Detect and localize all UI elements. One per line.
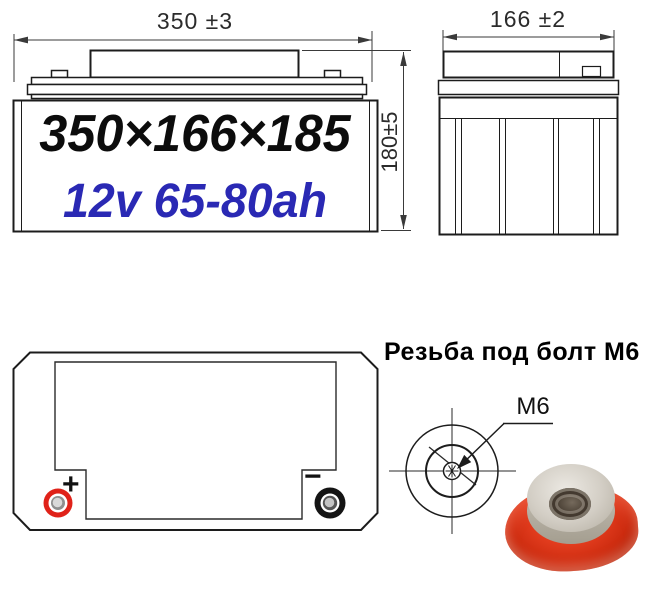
battery-dimension-diagram: 350 ±3 350×166×185 12v 65-80ah 180±5 [0,0,667,594]
front-ledge-3 [32,95,363,99]
terminal-nut-photo [500,452,667,594]
thread-size-label: M6 [508,393,558,421]
arrowhead [358,37,372,44]
front-width-dim-text: 350 ±3 [95,8,295,35]
front-right-terminal-bump [325,71,341,78]
thread-detail-title: Резьба под болт М6 [384,338,640,367]
negative-sign: − [304,462,322,492]
front-ledge-1 [32,78,363,85]
side-ledge [439,81,619,95]
positive-sign: + [62,470,80,500]
side-battery-outline [439,52,619,235]
side-vent [583,67,601,77]
arrowhead [600,34,614,40]
front-left-terminal-bump [52,71,68,78]
side-width-dim-text: 166 ±2 [448,6,608,33]
arrowhead [400,52,407,66]
nut-threaded-hole-icon [549,488,591,520]
arrowhead [443,34,457,40]
top-view-drawing [0,340,400,550]
front-ledge-2 [28,85,367,95]
battery-capacity-label: 12v 65-80ah [22,174,367,229]
arrowhead [400,215,407,229]
front-height-dim-text: 180±5 [377,87,401,197]
battery-size-label: 350×166×185 [22,104,367,164]
side-view-drawing [420,0,667,250]
front-lid [91,51,299,78]
arrowhead [14,37,28,44]
